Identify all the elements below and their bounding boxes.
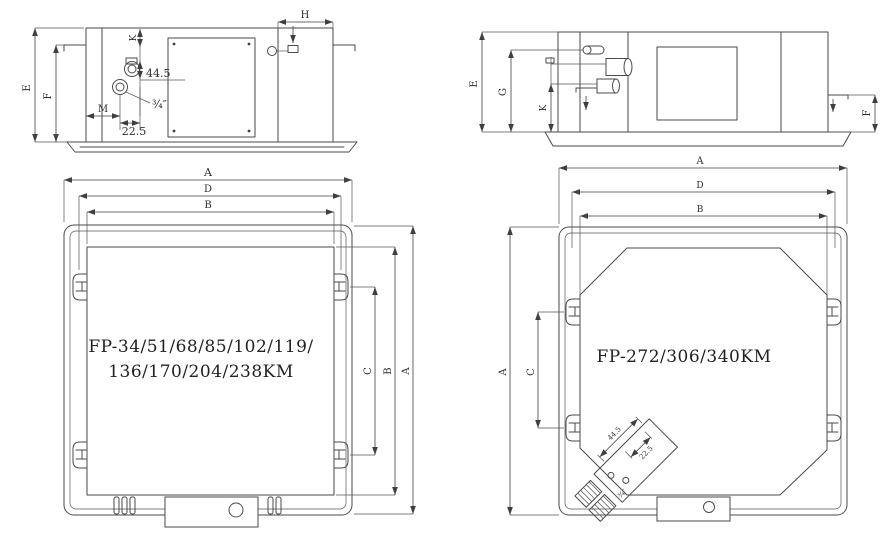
right-hanger-hook [828, 95, 848, 99]
unit-body-octagon [580, 248, 827, 495]
dim-value-44-5: 44.5 [606, 425, 623, 442]
technical-drawing-page: E F H K M 44.5 ¾″ 22.5 [0, 0, 893, 545]
dim-label-F: F [43, 92, 54, 99]
model-text-small-units-line1: FP-34/51/68/85/102/119/ [88, 337, 313, 357]
dim-label-B-top: B [204, 200, 211, 211]
bottom-details [114, 497, 281, 527]
model-text-large-units: FP-272/306/340KM [597, 347, 772, 367]
dim-label-E: E [22, 84, 33, 91]
dim-value-44-5: 44.5 [146, 67, 171, 80]
side-view-small-units: E F H K M 44.5 ¾″ 22.5 [22, 10, 357, 152]
pipe-connections [113, 58, 151, 130]
ceiling-panel-profile [545, 132, 851, 146]
side-view-large-units: E G K F [469, 32, 875, 146]
hanger-brackets [566, 299, 841, 441]
electrical-box [168, 38, 255, 137]
control-box [657, 497, 730, 521]
dim-label-C-right: C [363, 367, 374, 375]
dim-label-K: K [129, 34, 139, 41]
ceiling-panel-profile [67, 142, 357, 152]
dim-value-pipe-size: ¾″ [152, 98, 167, 111]
dim-label-B-top: B [697, 205, 704, 215]
dim-label-G: G [498, 88, 509, 96]
pipe-connections [546, 46, 632, 93]
right-hanger-hook [333, 45, 355, 51]
dim-label-H: H [301, 10, 310, 21]
dim-label-E: E [469, 80, 480, 87]
dim-label-A-right: A [401, 367, 412, 376]
dim-label-D-top: D [696, 181, 703, 191]
dim-label-A-top: A [695, 156, 704, 167]
dim-label-M: M [98, 104, 108, 115]
control-box [165, 497, 258, 527]
dim-label-K: K [539, 104, 549, 111]
dim-label-B-right: B [383, 367, 394, 374]
dim-value-22-5: 22.5 [122, 125, 147, 138]
left-hanger-hook [576, 88, 596, 92]
unit-body-outline [64, 28, 357, 152]
left-hanger-hook [64, 45, 86, 51]
plan-view-large-units: 44.5 22.5 ¾″ A D B A C FP-272/306/340KM [498, 156, 847, 523]
dim-label-D-top: D [204, 184, 212, 195]
dim-label-C-left: C [526, 368, 537, 376]
plan-view-small-units: A D B C B A FP-34/51/68/85/102/119/ 136/… [64, 166, 413, 527]
electrical-box [657, 47, 737, 120]
drain-connection [268, 26, 299, 56]
dim-label-A-top: A [203, 166, 213, 179]
dim-label-F: F [862, 109, 873, 116]
fan-coil-dimension-drawing: E F H K M 44.5 ¾″ 22.5 [0, 0, 893, 545]
dim-label-A-left: A [498, 368, 509, 377]
dimension-lines [35, 22, 333, 142]
model-text-small-units-line2: 136/170/204/238KM [108, 362, 294, 382]
dimension-lines [510, 168, 847, 515]
